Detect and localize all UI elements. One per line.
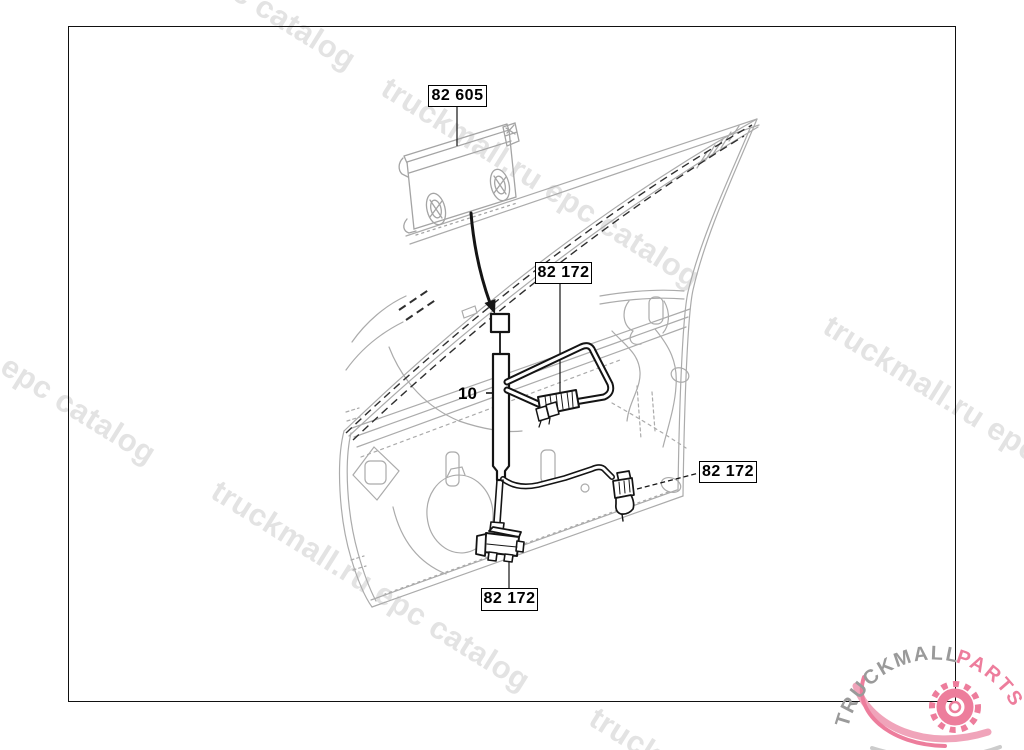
logo-swoosh <box>856 677 1000 750</box>
bottom-connector <box>476 527 524 562</box>
square-connector <box>491 314 509 332</box>
ref-number-10: 10 <box>458 384 486 404</box>
part-label-82172-bottom[interactable]: 82 172 <box>481 588 538 611</box>
door-wiring-harness-drawing <box>0 0 1024 750</box>
part-label-82172-rear[interactable]: 82 172 <box>699 461 757 483</box>
wiring-harness <box>476 314 634 562</box>
rear-connector <box>613 471 634 521</box>
mid-connector <box>536 390 579 427</box>
part-label-82605[interactable]: 82 605 <box>428 85 487 107</box>
truckmallparts-logo: TRUCKMALL PARTS <box>830 640 1024 750</box>
install-arrow <box>471 213 496 314</box>
part-label-82172-mid[interactable]: 82 172 <box>535 262 592 284</box>
epc-diagram-page: truckmall.ru epc catalog truckmall.ru ep… <box>0 0 1024 750</box>
logo-gear-icon <box>932 684 978 730</box>
svg-text:TRUCKMALL PARTS: TRUCKMALL PARTS <box>831 642 1024 729</box>
